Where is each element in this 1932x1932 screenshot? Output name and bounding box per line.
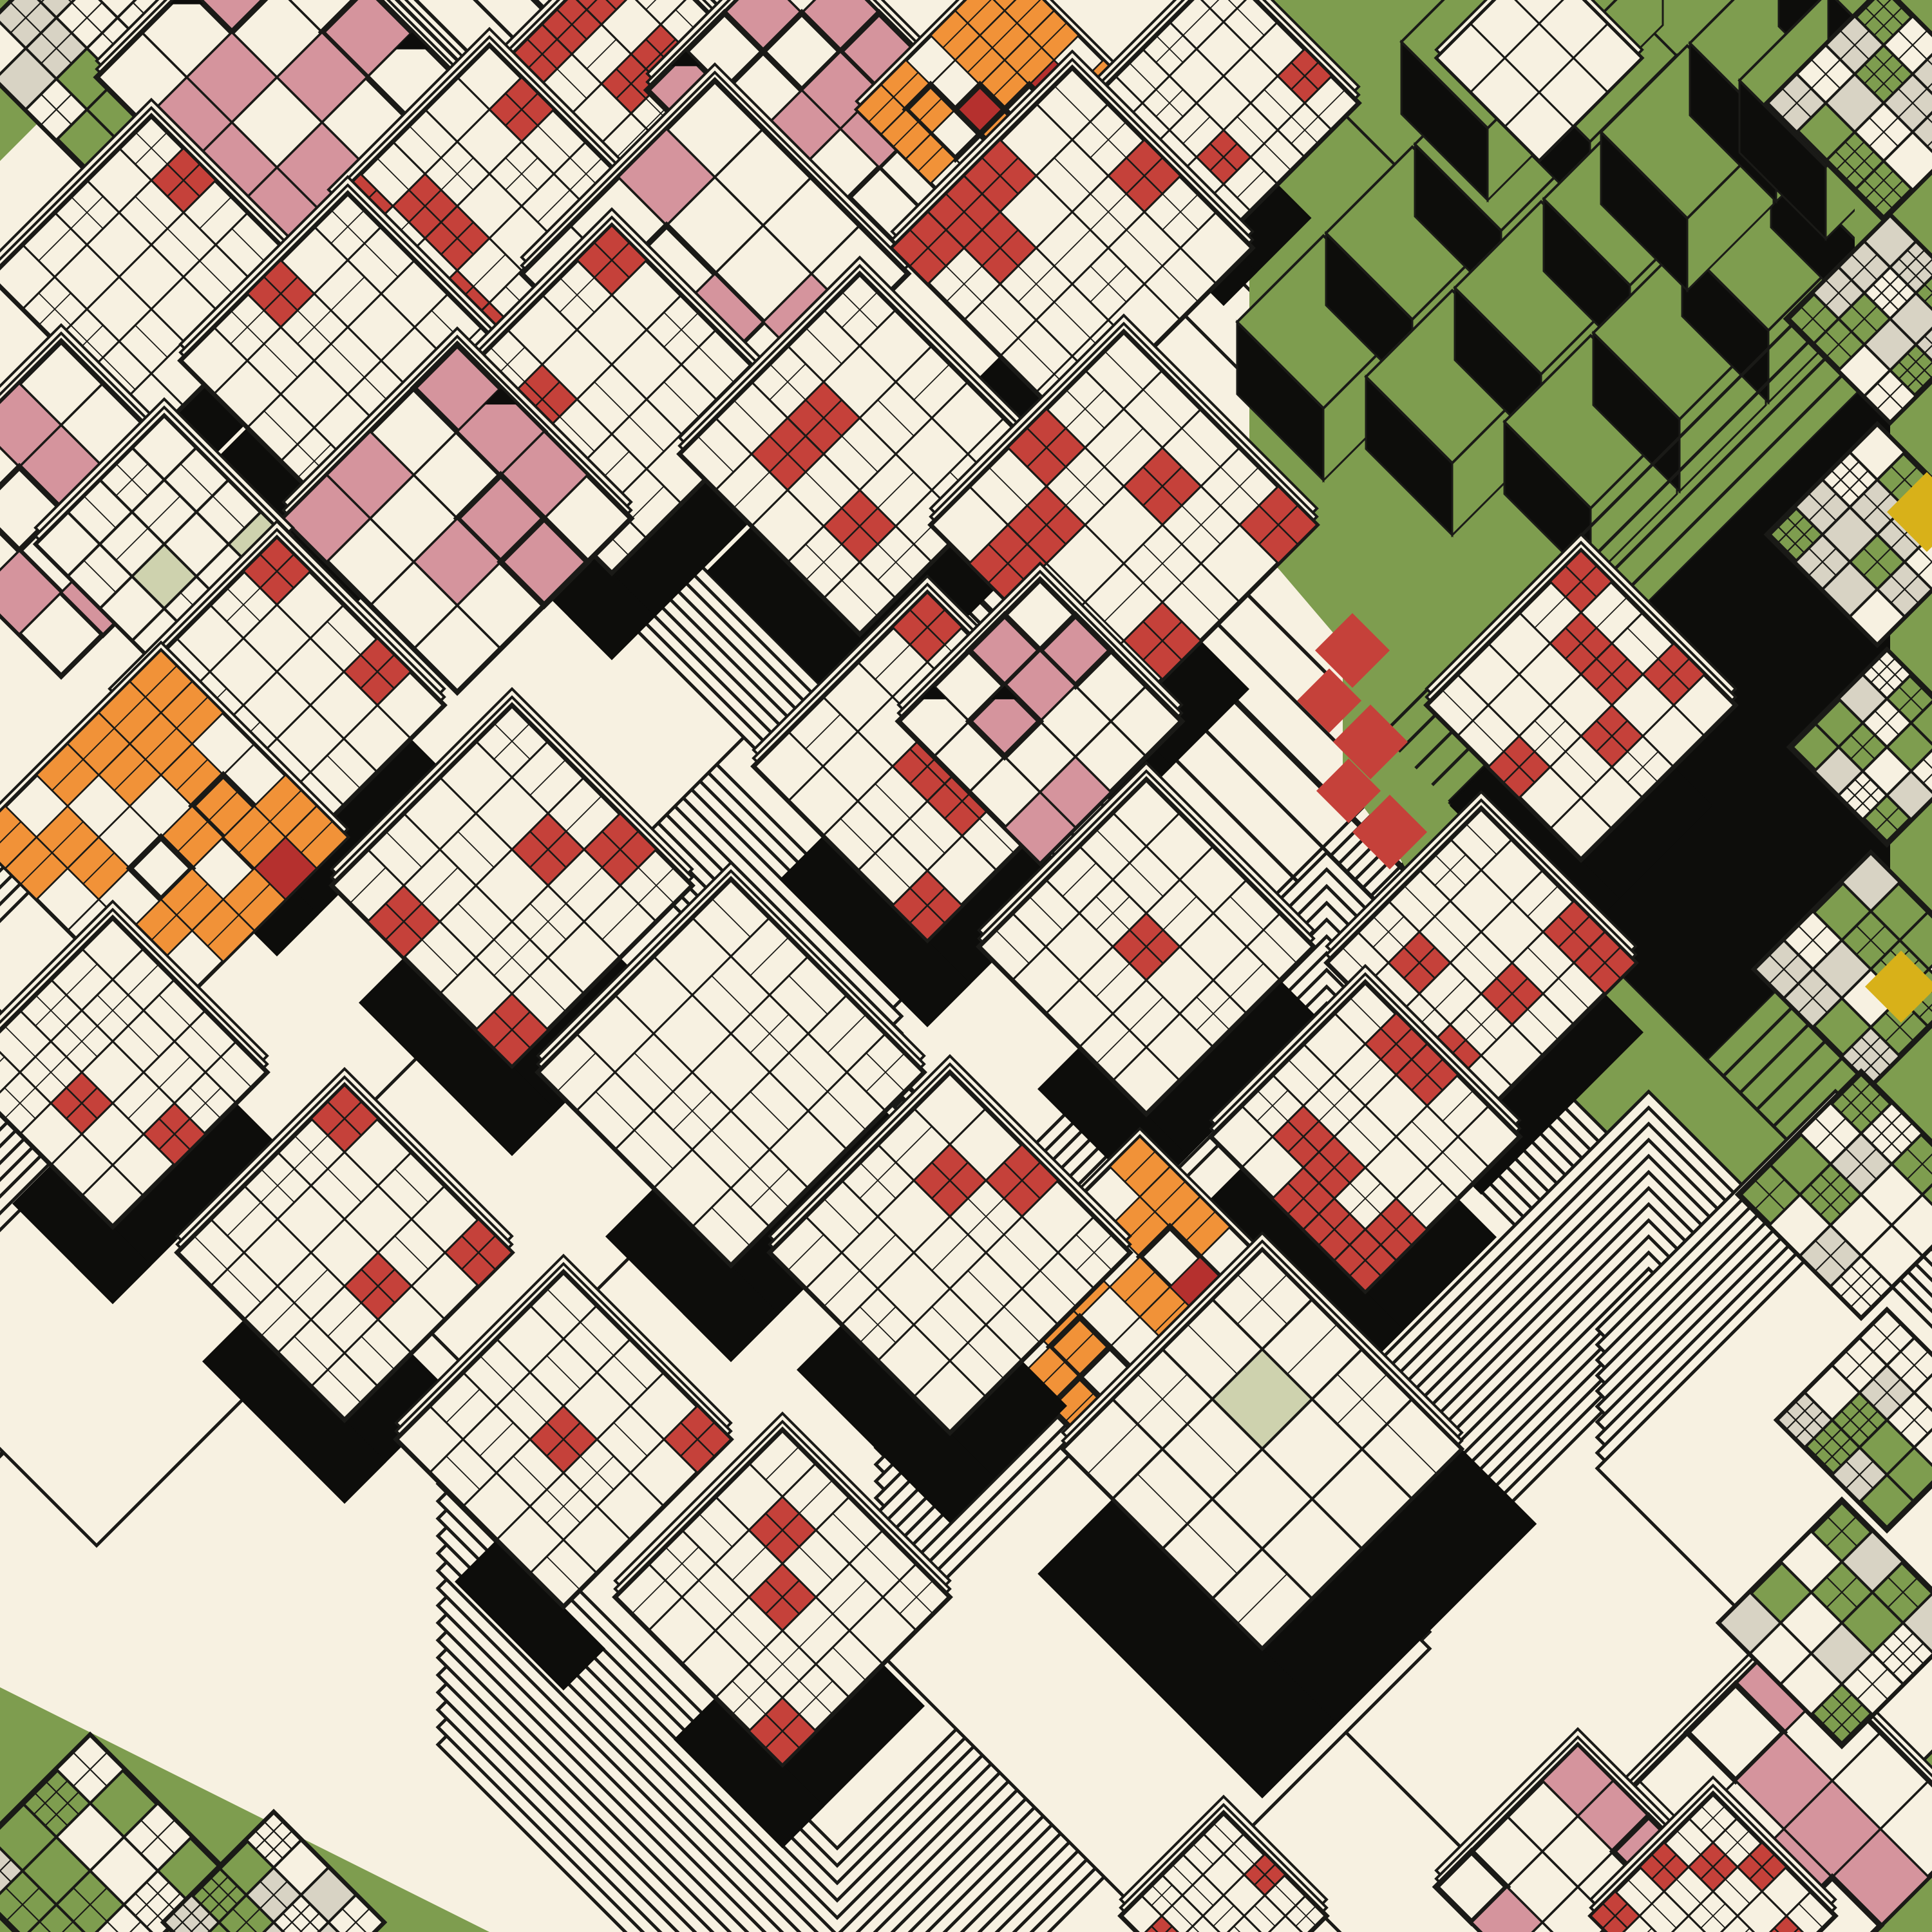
artwork-canvas (0, 0, 1932, 1932)
generative-artwork (0, 0, 1932, 1932)
